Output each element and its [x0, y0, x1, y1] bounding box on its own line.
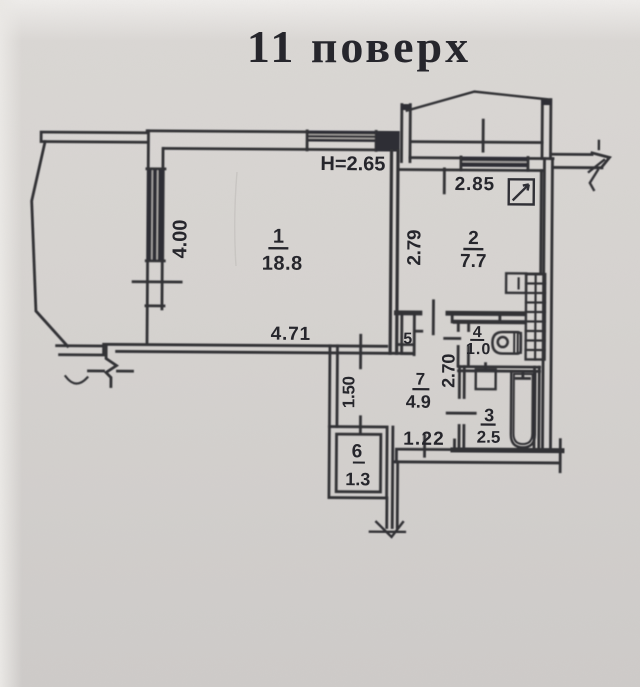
svg-text:1.3: 1.3 [345, 469, 370, 489]
svg-text:1.0: 1.0 [466, 341, 491, 358]
svg-text:4: 4 [473, 324, 482, 341]
svg-text:5: 5 [403, 331, 412, 348]
svg-text:18.8: 18.8 [262, 253, 303, 275]
svg-text:2.5: 2.5 [477, 428, 501, 447]
svg-text:2.79: 2.79 [404, 230, 425, 266]
svg-text:2.70: 2.70 [438, 354, 458, 388]
svg-text:6: 6 [352, 441, 363, 462]
svg-text:1.22: 1.22 [403, 429, 445, 450]
svg-text:1: 1 [273, 226, 284, 248]
svg-text:2.85: 2.85 [455, 174, 495, 195]
svg-text:11 поверх: 11 поверх [247, 21, 471, 72]
svg-text:4.71: 4.71 [271, 324, 311, 345]
svg-text:4.9: 4.9 [406, 392, 431, 412]
svg-text:3: 3 [484, 405, 494, 425]
svg-text:1.50: 1.50 [339, 376, 358, 408]
svg-text:2: 2 [468, 228, 479, 249]
svg-text:7.7: 7.7 [460, 251, 487, 272]
svg-text:H=2.65: H=2.65 [320, 153, 385, 175]
svg-text:7: 7 [416, 370, 426, 389]
svg-text:4.00: 4.00 [169, 219, 191, 258]
